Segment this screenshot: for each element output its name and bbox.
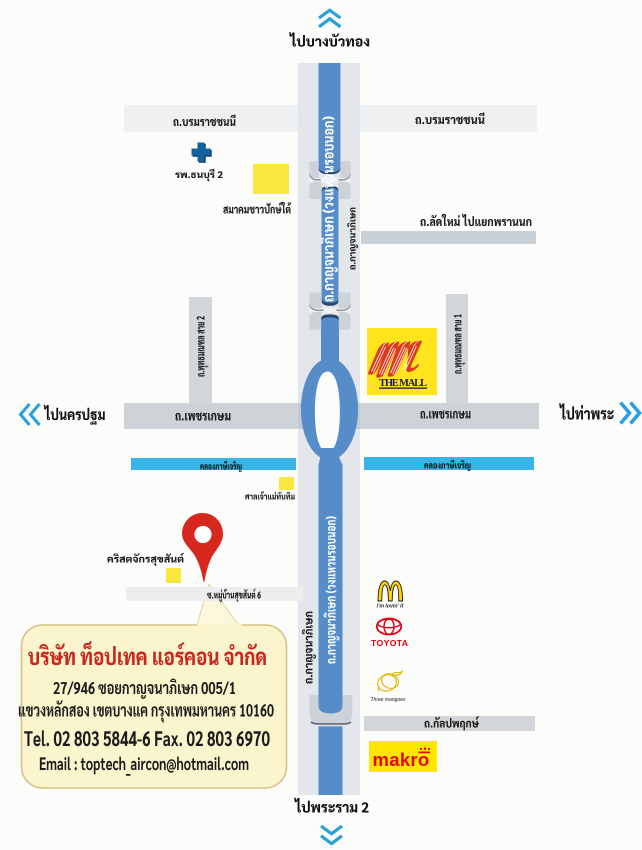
svg-text:i'm lovin' it: i'm lovin' it (377, 604, 404, 610)
svg-text:TOYOTA: TOYOTA (371, 638, 408, 648)
svg-text:Three mangoes: Three mangoes (370, 697, 406, 703)
svg-text:THE MALL: THE MALL (379, 378, 427, 389)
